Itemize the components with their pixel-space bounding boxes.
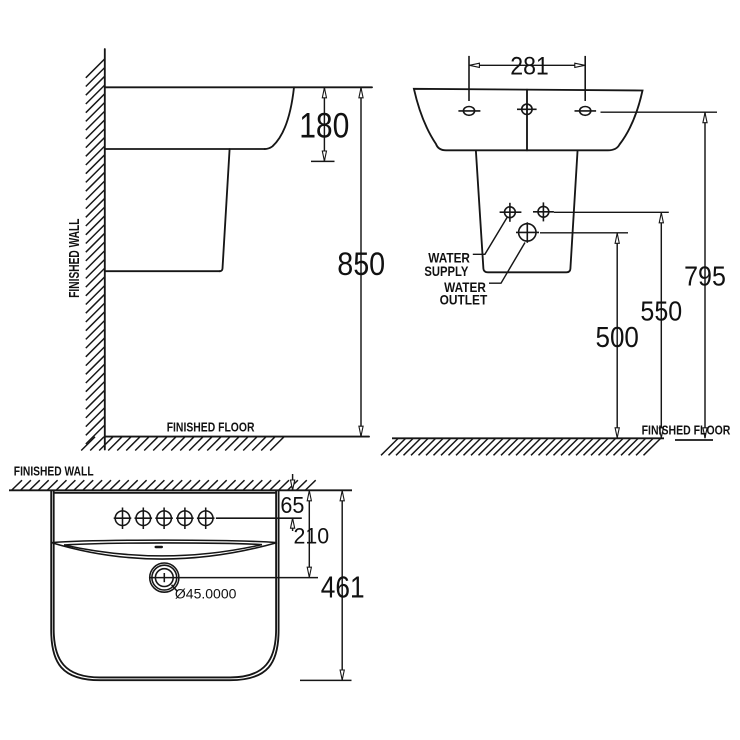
svg-text:FINISHED WALL: FINISHED WALL xyxy=(65,218,83,297)
svg-text:FINISHED WALL: FINISHED WALL xyxy=(14,464,94,478)
svg-text:210: 210 xyxy=(293,523,329,549)
svg-text:FINISHED FLOOR: FINISHED FLOOR xyxy=(642,422,731,437)
svg-text:SUPPLY: SUPPLY xyxy=(424,264,469,279)
svg-text:Ø45.0000: Ø45.0000 xyxy=(175,586,237,602)
svg-text:OUTLET: OUTLET xyxy=(440,293,488,308)
svg-text:850: 850 xyxy=(337,246,385,282)
svg-text:795: 795 xyxy=(684,260,726,291)
svg-text:65: 65 xyxy=(280,492,304,518)
svg-text:FINISHED FLOOR: FINISHED FLOOR xyxy=(167,421,255,435)
svg-text:500: 500 xyxy=(596,321,639,354)
svg-text:550: 550 xyxy=(640,295,682,327)
svg-text:180: 180 xyxy=(299,106,349,146)
svg-text:461: 461 xyxy=(321,570,365,604)
svg-text:281: 281 xyxy=(510,53,549,81)
